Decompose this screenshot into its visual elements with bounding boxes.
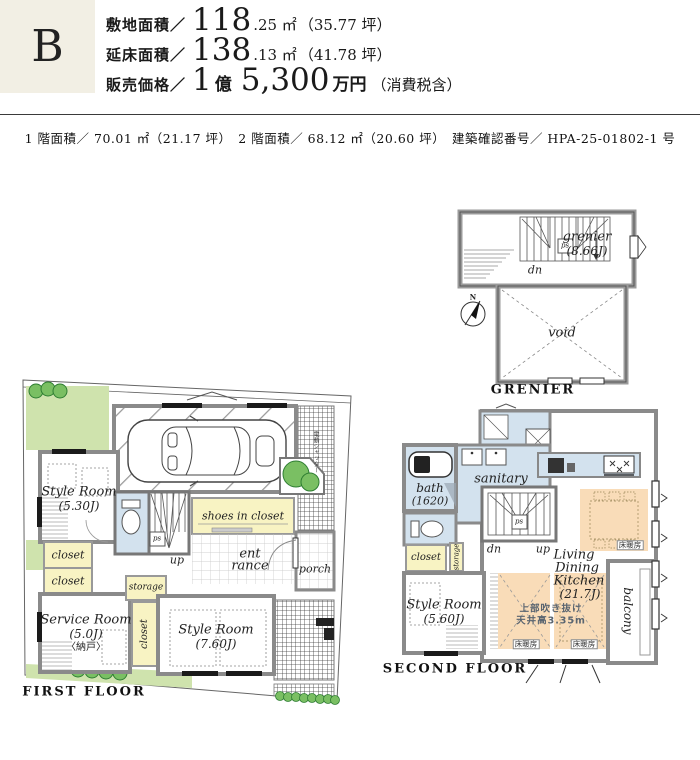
shoes-closet-label: shoes in closet xyxy=(202,511,284,522)
header-info: 敷地面積／ 118 .25 ㎡ （35.77 坪） 延床面積／ 138 .13 … xyxy=(106,2,462,91)
void-note-2: 天井高3.35m xyxy=(516,616,586,626)
grenier-plan: grenier (8.66J) dn ps void N GRENIER xyxy=(450,198,675,403)
toilet-room-2f xyxy=(404,513,456,545)
floorplan-sheet: B 敷地面積／ 118 .25 ㎡ （35.77 坪） 延床面積／ 138 .1… xyxy=(0,0,700,760)
ldk-label-3: Kitchen xyxy=(554,575,605,588)
up-label-1f: up xyxy=(170,555,184,566)
service-room-size: (5.0J) xyxy=(69,628,102,640)
car-icon xyxy=(128,416,286,486)
closet-c-label: closet xyxy=(140,619,150,649)
entrance-label-2: rance xyxy=(231,560,268,573)
style-room-2f-label: Style Room xyxy=(406,599,481,612)
ldk-size: (21.7J) xyxy=(560,588,601,600)
style-room-2f-size: (5.60J) xyxy=(424,613,465,625)
up-label-2f: up xyxy=(536,544,550,555)
kitchen-sink-icon xyxy=(548,458,564,473)
balcony-label: balcony xyxy=(622,587,634,634)
style-room-2-size: (7.60J) xyxy=(196,638,237,650)
price-tax-note: （消費税含） xyxy=(372,74,462,95)
price-man-value: 5,300 xyxy=(241,62,330,98)
toilet-icon xyxy=(122,510,140,534)
service-room-label: Service Room xyxy=(40,614,131,627)
unit-label-box: B xyxy=(0,0,95,93)
void-note-1: 上部吹き抜け xyxy=(519,604,582,614)
price-row: 販売価格／ 1 億 5,300 万円 （消費税含） xyxy=(106,62,462,91)
closet-b-label: closet xyxy=(52,576,85,587)
kitchen-counter xyxy=(538,453,640,477)
dn-label-2f: dn xyxy=(487,544,501,555)
compass-icon xyxy=(461,301,485,326)
compass-n-label: N xyxy=(470,294,476,301)
first-floor-plan: Style Room (5.30J) closet closet Service… xyxy=(12,372,357,712)
floor-heating-left: 床暖房 xyxy=(513,639,540,649)
closet-2f-label: closet xyxy=(411,553,441,563)
first-floor-title: FIRST FLOOR xyxy=(22,686,146,699)
porch-label: porch xyxy=(299,564,331,575)
style-room-2-label: Style Room xyxy=(178,624,253,637)
closet-a-label: closet xyxy=(52,550,85,561)
stairs-2f xyxy=(482,487,556,541)
price-oku-value: 1 xyxy=(192,62,212,98)
price-oku-unit: 億 xyxy=(215,70,232,95)
grenier-ps-label: ps xyxy=(561,243,569,250)
ps-label-1f: ps xyxy=(153,536,161,543)
storage-1f-label: storage xyxy=(129,584,163,593)
header-divider xyxy=(0,114,700,115)
service-room-note: 〈納戸〉 xyxy=(66,643,106,653)
void-label: void xyxy=(548,327,576,340)
unit-letter: B xyxy=(31,21,63,72)
price-man-unit: 万円 xyxy=(333,70,367,95)
floor-heating-dining: 床暖房 xyxy=(617,540,644,550)
floor-heating-right: 床暖房 xyxy=(571,639,598,649)
storage-2f-label: storage xyxy=(454,544,461,571)
sanitary-label: sanitary xyxy=(474,473,528,486)
style-room-1-label: Style Room xyxy=(41,486,116,499)
floor-area-row: 延床面積／ 138 .13 ㎡ （41.78 坪） xyxy=(106,32,462,61)
second-floor-plan: bath (1620) sanitary closet storage dn u… xyxy=(388,403,690,695)
grenier-title: GRENIER xyxy=(491,384,576,397)
bath-label: bath xyxy=(416,482,443,494)
style-room-1-size: (5.30J) xyxy=(59,500,100,512)
first-floor-drawing xyxy=(12,372,357,712)
second-floor-title: SECOND FLOOR xyxy=(383,663,527,676)
area-detail-line: 1 階面積／ 70.01 ㎡（21.17 坪） 2 階面積／ 68.12 ㎡（2… xyxy=(0,128,700,147)
price-label: 販売価格／ xyxy=(106,74,186,95)
ps-label-2f: ps xyxy=(515,519,523,526)
grenier-room-label: grenier xyxy=(563,231,612,244)
grenier-dn-label: dn xyxy=(528,265,542,276)
site-area-row: 敷地面積／ 118 .25 ㎡ （35.77 坪） xyxy=(106,2,462,31)
grenier-room-size: (8.66J) xyxy=(567,245,608,257)
toilet-icon-2f xyxy=(421,521,443,537)
porch xyxy=(296,532,334,590)
toilet-room-1f xyxy=(115,492,149,554)
bath-size: (1620) xyxy=(412,496,449,507)
shutter-note: 電動シャッター xyxy=(312,431,318,473)
